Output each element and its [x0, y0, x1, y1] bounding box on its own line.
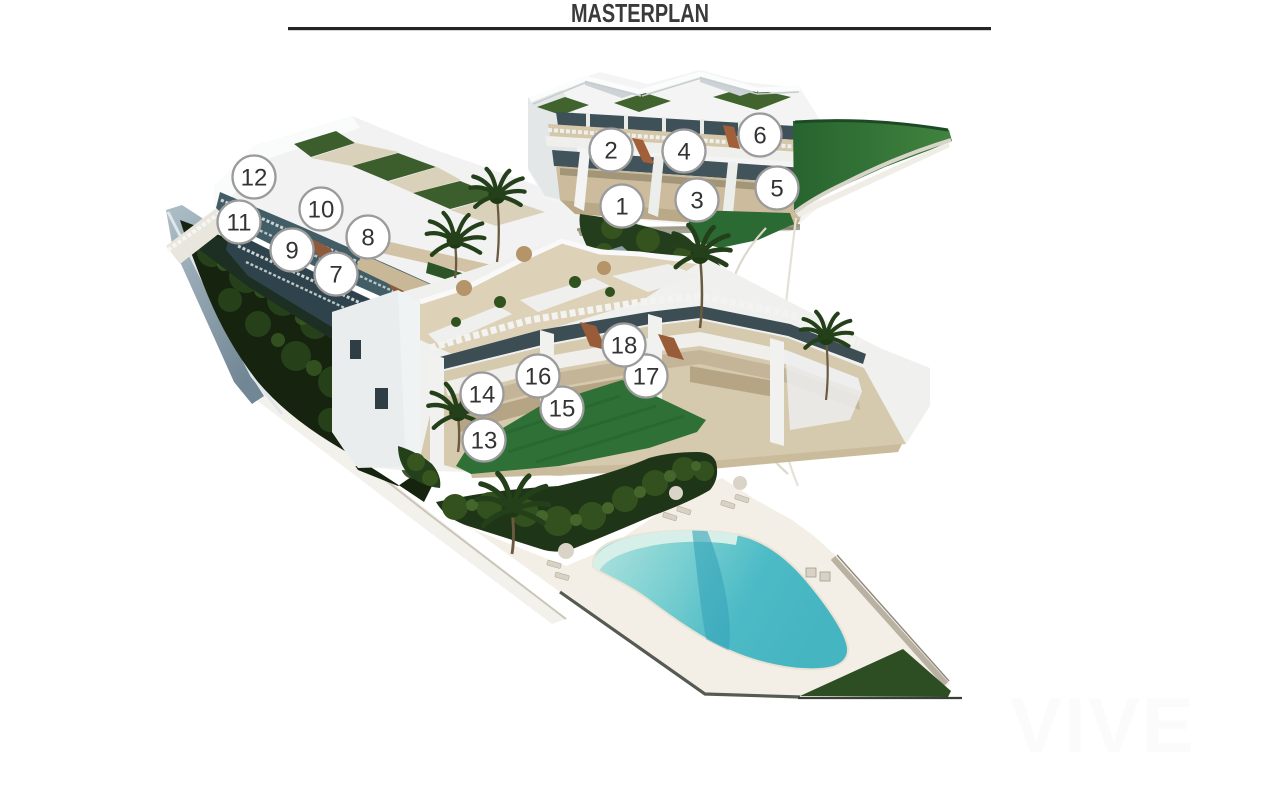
svg-text:12: 12: [241, 165, 268, 192]
svg-text:13: 13: [471, 428, 498, 455]
svg-text:7: 7: [329, 262, 342, 289]
svg-text:VIVE: VIVE: [1010, 681, 1196, 769]
svg-text:2: 2: [604, 138, 617, 165]
svg-text:9: 9: [285, 238, 298, 265]
svg-text:4: 4: [677, 139, 690, 166]
svg-text:17: 17: [633, 364, 660, 391]
svg-text:18: 18: [611, 333, 638, 360]
svg-text:11: 11: [227, 210, 252, 237]
svg-text:8: 8: [361, 225, 374, 252]
svg-text:6: 6: [753, 123, 766, 150]
svg-text:15: 15: [549, 396, 576, 423]
svg-text:MASTERPLAN: MASTERPLAN: [571, 0, 709, 28]
svg-text:3: 3: [690, 188, 703, 215]
svg-text:1: 1: [615, 194, 628, 221]
svg-text:10: 10: [308, 197, 335, 224]
svg-text:16: 16: [525, 364, 552, 391]
svg-text:14: 14: [469, 382, 496, 409]
svg-text:5: 5: [770, 176, 783, 203]
